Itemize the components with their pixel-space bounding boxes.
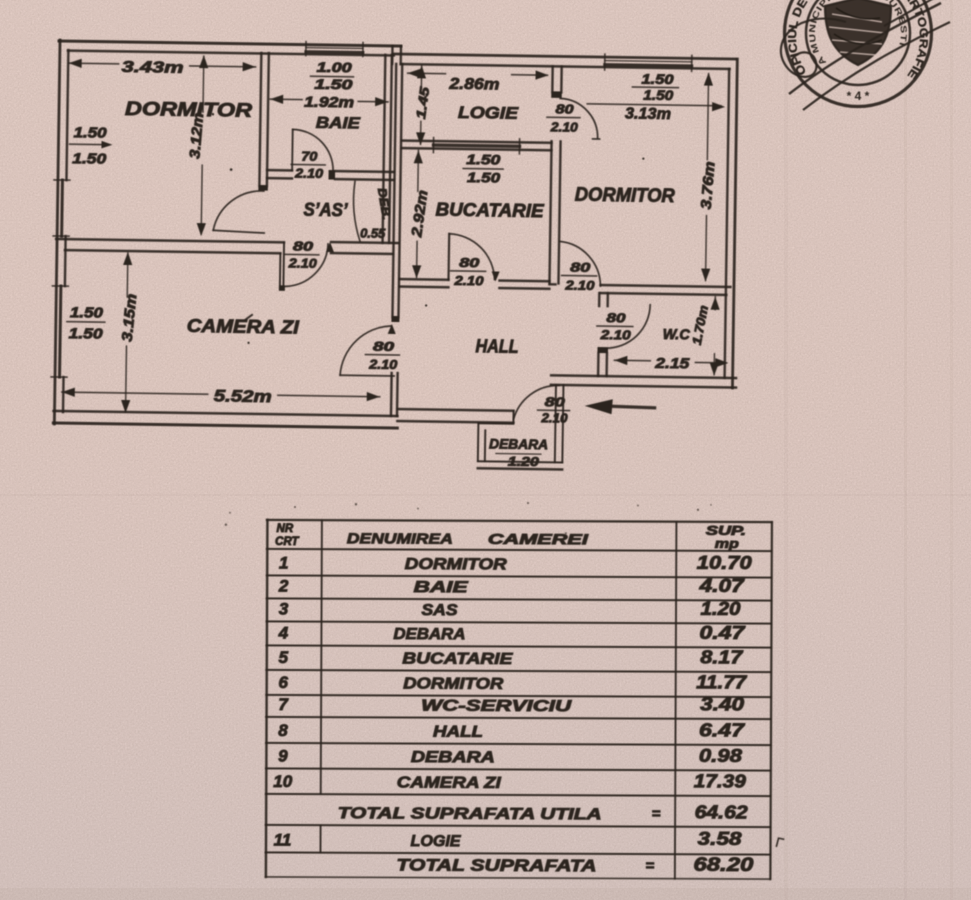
svg-text:2.10: 2.10 (564, 278, 595, 293)
svg-text:68.20: 68.20 (693, 855, 754, 876)
svg-text:LOGIE: LOGIE (458, 103, 519, 123)
svg-text:0.98: 0.98 (699, 746, 742, 766)
svg-text:6.47: 6.47 (699, 720, 745, 740)
svg-text:W.C: W.C (663, 326, 691, 343)
svg-text:1.50: 1.50 (74, 125, 107, 141)
svg-text:DEBARA: DEBARA (393, 626, 465, 643)
svg-text:1.50: 1.50 (70, 305, 103, 321)
svg-text:8: 8 (278, 721, 288, 740)
svg-text:4: 4 (278, 623, 289, 642)
svg-text:2.15: 2.15 (654, 355, 690, 373)
svg-text:1.20: 1.20 (700, 599, 740, 619)
svg-text:BUCATARIE: BUCATARIE (435, 200, 544, 222)
svg-text:11.77: 11.77 (696, 672, 747, 692)
svg-text:DENUMIREA: DENUMIREA (347, 530, 453, 547)
svg-text:2.10: 2.10 (288, 255, 318, 270)
svg-text:2.10: 2.10 (453, 273, 484, 288)
svg-text:0.55: 0.55 (360, 226, 386, 240)
svg-text:1.00: 1.00 (317, 60, 353, 76)
svg-text:9: 9 (278, 746, 288, 765)
svg-text:CAMEREI: CAMEREI (488, 531, 589, 548)
svg-text:BAIE: BAIE (414, 579, 470, 596)
svg-text:5.52m: 5.52m (214, 387, 272, 406)
svg-text:80: 80 (545, 394, 566, 409)
svg-text:1.50: 1.50 (467, 169, 500, 185)
svg-text:2.86m: 2.86m (448, 76, 499, 94)
svg-text:0.47: 0.47 (699, 623, 745, 643)
svg-text:10.70: 10.70 (697, 553, 752, 573)
svg-text:2.10: 2.10 (550, 119, 579, 134)
svg-text:1.92m: 1.92m (304, 95, 354, 112)
svg-text:2.10: 2.10 (540, 410, 568, 425)
svg-text:2.10: 2.10 (368, 357, 398, 372)
svg-text:1.50: 1.50 (466, 151, 500, 168)
svg-text:1.50: 1.50 (314, 77, 353, 93)
svg-text:8.17: 8.17 (700, 647, 743, 667)
svg-text:3.58: 3.58 (697, 829, 741, 849)
svg-text:3.13m: 3.13m (625, 105, 671, 123)
svg-text:SAS: SAS (421, 602, 457, 619)
svg-text:LOGIE: LOGIE (410, 833, 461, 850)
svg-text:BUCATARIE: BUCATARIE (402, 650, 514, 667)
svg-text:1.50: 1.50 (72, 151, 106, 168)
svg-text:TOTAL SUPRAFATA UTILA: TOTAL SUPRAFATA UTILA (338, 805, 602, 823)
svg-text:64.62: 64.62 (695, 802, 748, 822)
svg-text:DEBARA: DEBARA (489, 436, 548, 452)
svg-text:1.50: 1.50 (69, 326, 103, 343)
svg-text:80: 80 (606, 310, 626, 325)
svg-text:NR: NR (277, 523, 294, 535)
svg-text:DORMITOR: DORMITOR (125, 99, 253, 122)
svg-text:10: 10 (273, 772, 293, 791)
svg-text:BAIE: BAIE (316, 115, 362, 133)
svg-text:TOTAL SUPRAFATA: TOTAL SUPRAFATA (396, 856, 596, 875)
svg-text:1.50: 1.50 (643, 87, 673, 103)
svg-text:SUP.: SUP. (706, 524, 746, 538)
svg-text:=: = (652, 806, 661, 823)
svg-text:80: 80 (293, 238, 314, 253)
svg-text:5: 5 (279, 648, 289, 667)
svg-text:2.10: 2.10 (294, 165, 324, 180)
svg-text:6: 6 (278, 673, 288, 692)
svg-text:17.39: 17.39 (694, 771, 746, 791)
svg-text:70: 70 (301, 149, 318, 164)
svg-text:3.43m: 3.43m (122, 59, 184, 77)
svg-text:DORMITOR: DORMITOR (403, 676, 504, 693)
svg-text:mp: mp (715, 537, 740, 551)
svg-text:4.07: 4.07 (698, 576, 745, 596)
svg-text:* 4 *: * 4 * (847, 89, 870, 103)
svg-text:2.10: 2.10 (599, 327, 631, 342)
svg-text:=: = (645, 858, 654, 875)
svg-text:1.20: 1.20 (508, 454, 540, 469)
svg-text:11: 11 (274, 830, 292, 849)
svg-text:DORMITOR: DORMITOR (575, 185, 676, 207)
svg-text:1: 1 (279, 553, 289, 572)
svg-text:80: 80 (570, 260, 591, 275)
svg-text:7: 7 (278, 695, 289, 714)
svg-text:CAMERA ZI: CAMERA ZI (397, 774, 502, 791)
svg-text:80: 80 (459, 255, 480, 270)
svg-text:HALL: HALL (475, 336, 518, 357)
svg-text:3.40: 3.40 (700, 694, 744, 714)
svg-text:DEBARA: DEBARA (411, 749, 495, 766)
svg-text:S’AS’: S’AS’ (303, 200, 348, 221)
svg-text:1.50: 1.50 (641, 71, 673, 87)
svg-text:3: 3 (279, 599, 289, 618)
svg-text:HALL: HALL (433, 724, 483, 741)
svg-text:80: 80 (555, 101, 574, 116)
svg-text:2: 2 (278, 576, 289, 595)
svg-text:CRT: CRT (275, 536, 299, 548)
svg-text:DORMITOR: DORMITOR (405, 556, 508, 573)
svg-text:CAMERA ZI: CAMERA ZI (187, 316, 300, 338)
svg-text:80: 80 (373, 339, 395, 354)
svg-text:WC-SERVICIU: WC-SERVICIU (421, 698, 572, 716)
